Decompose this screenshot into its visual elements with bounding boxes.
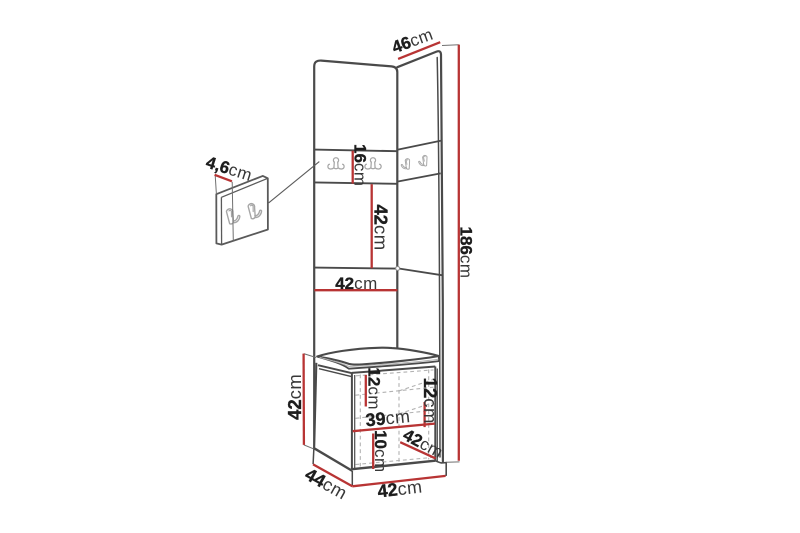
svg-text:16cm: 16cm [351, 144, 370, 187]
svg-text:42cm: 42cm [284, 374, 305, 420]
svg-text:42cm: 42cm [335, 273, 378, 292]
svg-text:12cm: 12cm [421, 378, 442, 424]
svg-text:186cm: 186cm [457, 226, 476, 278]
svg-text:42cm: 42cm [371, 204, 392, 250]
svg-text:12cm: 12cm [365, 367, 384, 410]
svg-text:10cm: 10cm [372, 430, 391, 473]
